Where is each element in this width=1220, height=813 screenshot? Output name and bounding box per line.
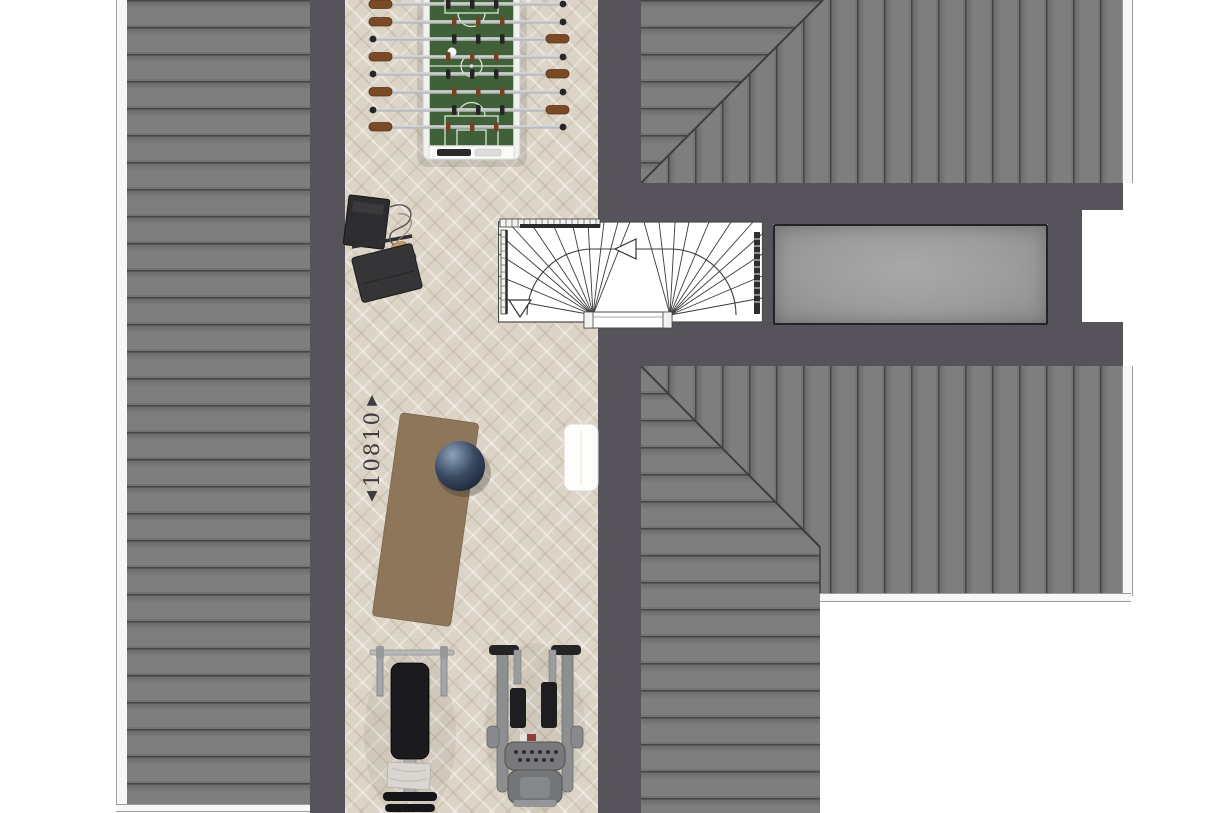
dimension-arrow-up: ▲ bbox=[367, 393, 378, 407]
pedal-left bbox=[510, 688, 526, 728]
console bbox=[505, 742, 565, 770]
dimension-marker: ▲ 10810 ▼ bbox=[350, 384, 394, 512]
pedal-right bbox=[541, 682, 557, 728]
foosball-score-slider bbox=[437, 149, 471, 156]
foosball-table bbox=[368, 0, 569, 167]
radiator bbox=[564, 424, 598, 491]
floor-plan-canvas: ▲ 10810 ▼ bbox=[0, 0, 1220, 813]
dimension-value: 10810 bbox=[360, 410, 384, 487]
towel bbox=[387, 762, 431, 790]
furniture-layer bbox=[0, 0, 1220, 813]
elliptical-trainer bbox=[485, 643, 585, 813]
dimension-arrow-down: ▼ bbox=[367, 489, 378, 503]
av-equipment bbox=[343, 195, 423, 303]
bench-pad bbox=[391, 663, 429, 759]
weight-bench bbox=[364, 646, 456, 813]
